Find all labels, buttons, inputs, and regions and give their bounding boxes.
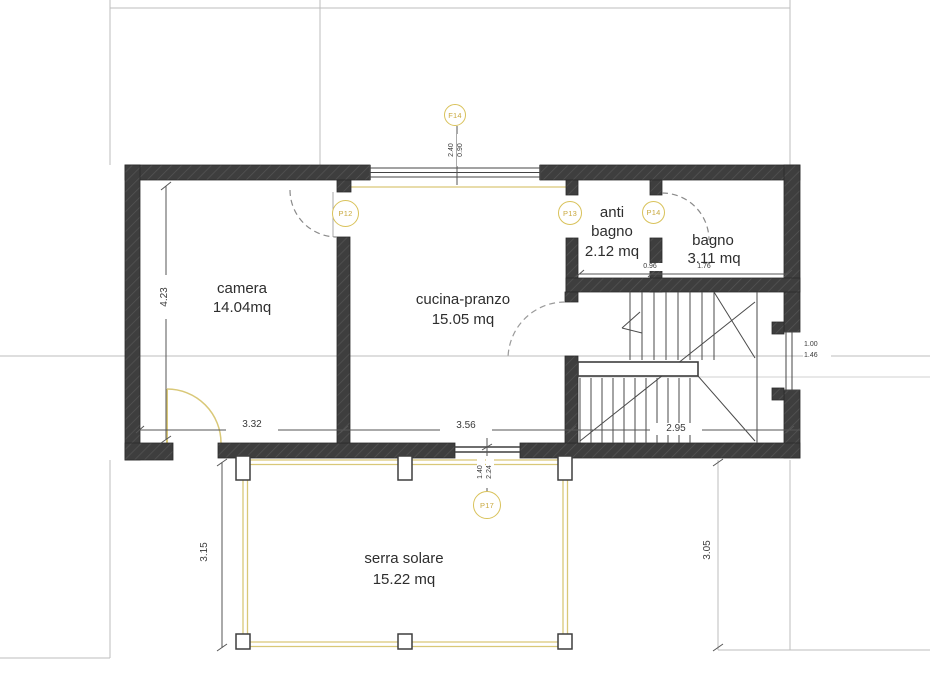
dim-serra-left: 3.15 (199, 530, 211, 574)
room-area-antibagno: 2.12 mq (570, 242, 654, 261)
dim-camera-height: 4.23 (159, 275, 171, 319)
marker-door-p12: P12 (332, 200, 359, 227)
wall-stub-antibagno (566, 180, 578, 195)
dimension-lines (136, 126, 800, 651)
room-label-bagno: bagno (678, 231, 748, 250)
room-label-serra: serra solare (340, 549, 468, 568)
dim-window-w: 2.40 (448, 134, 456, 166)
dim-serra-door-h: 2.24 (486, 456, 494, 488)
dim-window-h: 0.90 (457, 134, 465, 166)
window-jamb-top (772, 322, 784, 334)
dim-serra-right: 3.05 (702, 528, 714, 572)
arc-door-camera (290, 190, 337, 237)
staircase (578, 292, 757, 443)
wall-bottom-main (218, 443, 455, 458)
wall-top-right (540, 165, 800, 180)
floor-plan: camera 14.04mq cucina-pranzo 15.05 mq an… (0, 0, 930, 698)
stair-direction-arrow (622, 312, 640, 328)
window-jamb-bottom (772, 388, 784, 400)
marker-window-f14: F14 (444, 104, 466, 126)
dim-antibagno-width: 0.96 (634, 263, 666, 271)
room-area-serra: 15.22 mq (340, 570, 468, 589)
wall-top-left (125, 165, 370, 180)
marker-door-p13: P13 (558, 201, 582, 225)
marker-door-p17: P17 (473, 491, 501, 519)
marker-door-p14: P14 (642, 201, 665, 224)
dim-stair-width: 2.95 (650, 423, 702, 435)
room-label-cucina: cucina-pranzo (398, 290, 528, 309)
plan-drawing (0, 0, 930, 698)
dim-level-b: 1.46 (803, 352, 831, 360)
wall-right-upper (784, 165, 800, 332)
wall-stair-left-a (565, 292, 578, 302)
room-label-antibagno: anti bagno (577, 203, 647, 241)
dim-level-a: 1.00 (803, 341, 831, 349)
room-area-camera: 14.04mq (182, 298, 302, 317)
room-area-cucina: 15.05 mq (398, 310, 528, 329)
window-right (784, 332, 800, 390)
wall-stub-p12 (337, 180, 351, 192)
wall-stub-bagno (650, 180, 662, 195)
room-label-camera: camera (182, 279, 302, 298)
dim-camera-width: 3.32 (226, 419, 278, 431)
wall-camera-cucina (337, 237, 350, 443)
wall-bagni-bottom (566, 278, 800, 292)
dim-cucina-width: 3.56 (440, 420, 492, 432)
wall-left (125, 165, 140, 460)
window-top (370, 165, 540, 180)
stair-handrail (578, 362, 698, 376)
dim-bagno-width: 1.76 (688, 263, 720, 271)
entry-door (167, 389, 221, 443)
wall-bottom-stub (125, 443, 173, 460)
dim-serra-door-w: 1.40 (477, 456, 485, 488)
